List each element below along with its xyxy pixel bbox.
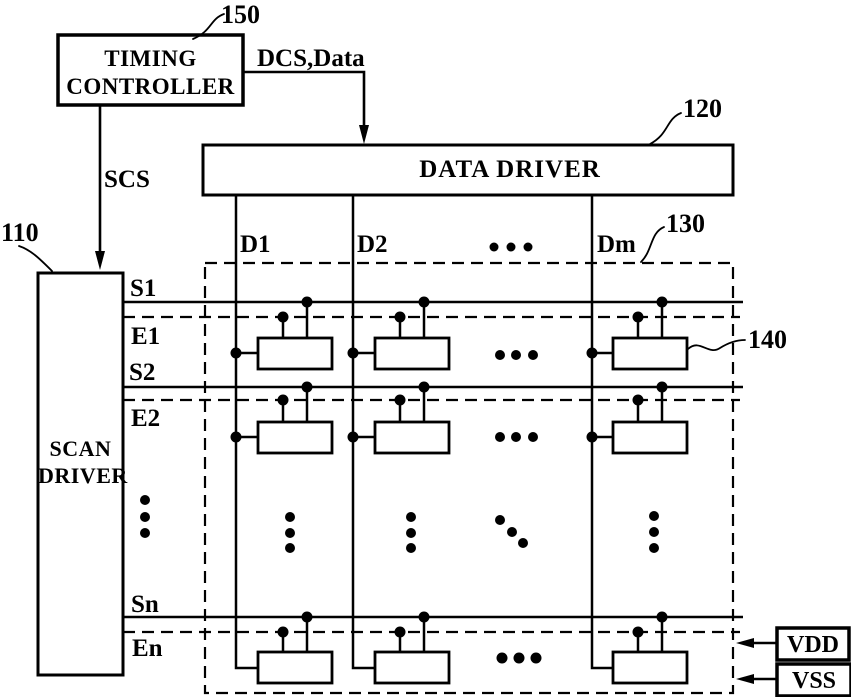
ellipsis-row2 <box>495 432 538 442</box>
pixel-cell-r2cm <box>587 382 688 454</box>
vss-arrow <box>736 674 777 684</box>
ellipsis-row1 <box>495 350 538 360</box>
ellipsis-rown <box>497 653 542 664</box>
emission-line-en-label: En <box>132 636 163 661</box>
ref-150: 150 <box>221 2 260 28</box>
pixel-cell-r1c1 <box>231 297 333 370</box>
ref-140: 140 <box>748 327 787 353</box>
signal-scs-label: SCS <box>104 167 150 192</box>
timing-controller-line2: CONTROLLER <box>58 73 243 101</box>
pixel-cell-r1c2 <box>348 297 450 370</box>
ellipsis-scan-column <box>140 495 150 538</box>
scan-driver-line2: DRIVER <box>38 462 123 489</box>
leader-110 <box>19 246 52 271</box>
emission-line-e2-label: E2 <box>131 406 160 431</box>
ellipsis-data-labels <box>490 243 533 252</box>
ref-130: 130 <box>666 211 705 237</box>
patent-figure: 150 TIMING CONTROLLER DCS,Data SCS 120 D… <box>0 0 851 697</box>
data-line-dm-label: Dm <box>597 232 636 257</box>
data-line-d2-label: D2 <box>357 232 388 257</box>
scan-driver-line1: SCAN <box>38 435 123 462</box>
vdd-arrow <box>736 638 777 648</box>
emission-line-e1-label: E1 <box>131 324 160 349</box>
pixel-cell-rnc2 <box>375 612 449 684</box>
pixel-cell-rncm <box>613 612 687 684</box>
timing-controller-label: TIMING CONTROLLER <box>58 45 243 101</box>
ellipsis-diagonal <box>495 515 528 548</box>
data-line-d1-label: D1 <box>240 232 271 257</box>
data-driver-label: DATA DRIVER <box>370 157 650 182</box>
circuit-diagram-svg <box>0 0 851 697</box>
ref-110: 110 <box>1 220 39 246</box>
data-line-d2 <box>353 195 375 668</box>
data-line-dm <box>592 195 613 668</box>
leader-120 <box>650 113 681 144</box>
leader-140 <box>688 340 745 350</box>
pixel-cell-rnc1 <box>258 612 332 684</box>
pixel-cell-r1cm <box>587 297 688 370</box>
dcs-arrowhead <box>359 125 369 144</box>
timing-controller-line1: TIMING <box>58 45 243 73</box>
signal-dcs-data-label: DCS,Data <box>257 46 365 71</box>
ref-120: 120 <box>683 96 722 122</box>
ellipsis-d2-column <box>406 512 416 553</box>
scan-driver-label: SCAN DRIVER <box>38 435 123 489</box>
vss-label: VSS <box>777 666 851 696</box>
scan-line-s2-label: S2 <box>129 360 155 385</box>
ellipsis-dm-column <box>649 511 659 553</box>
ellipsis-d1-column <box>285 512 295 553</box>
data-line-d1 <box>236 195 258 668</box>
vdd-label: VDD <box>777 630 849 660</box>
scan-line-sn-label: Sn <box>131 592 159 617</box>
pixel-cell-r2c2 <box>348 382 450 454</box>
leader-130 <box>641 227 664 262</box>
scan-line-s1-label: S1 <box>130 276 156 301</box>
dcs-data-wire <box>243 72 369 144</box>
pixel-cell-r2c1 <box>231 382 333 454</box>
scs-arrowhead <box>95 251 105 270</box>
